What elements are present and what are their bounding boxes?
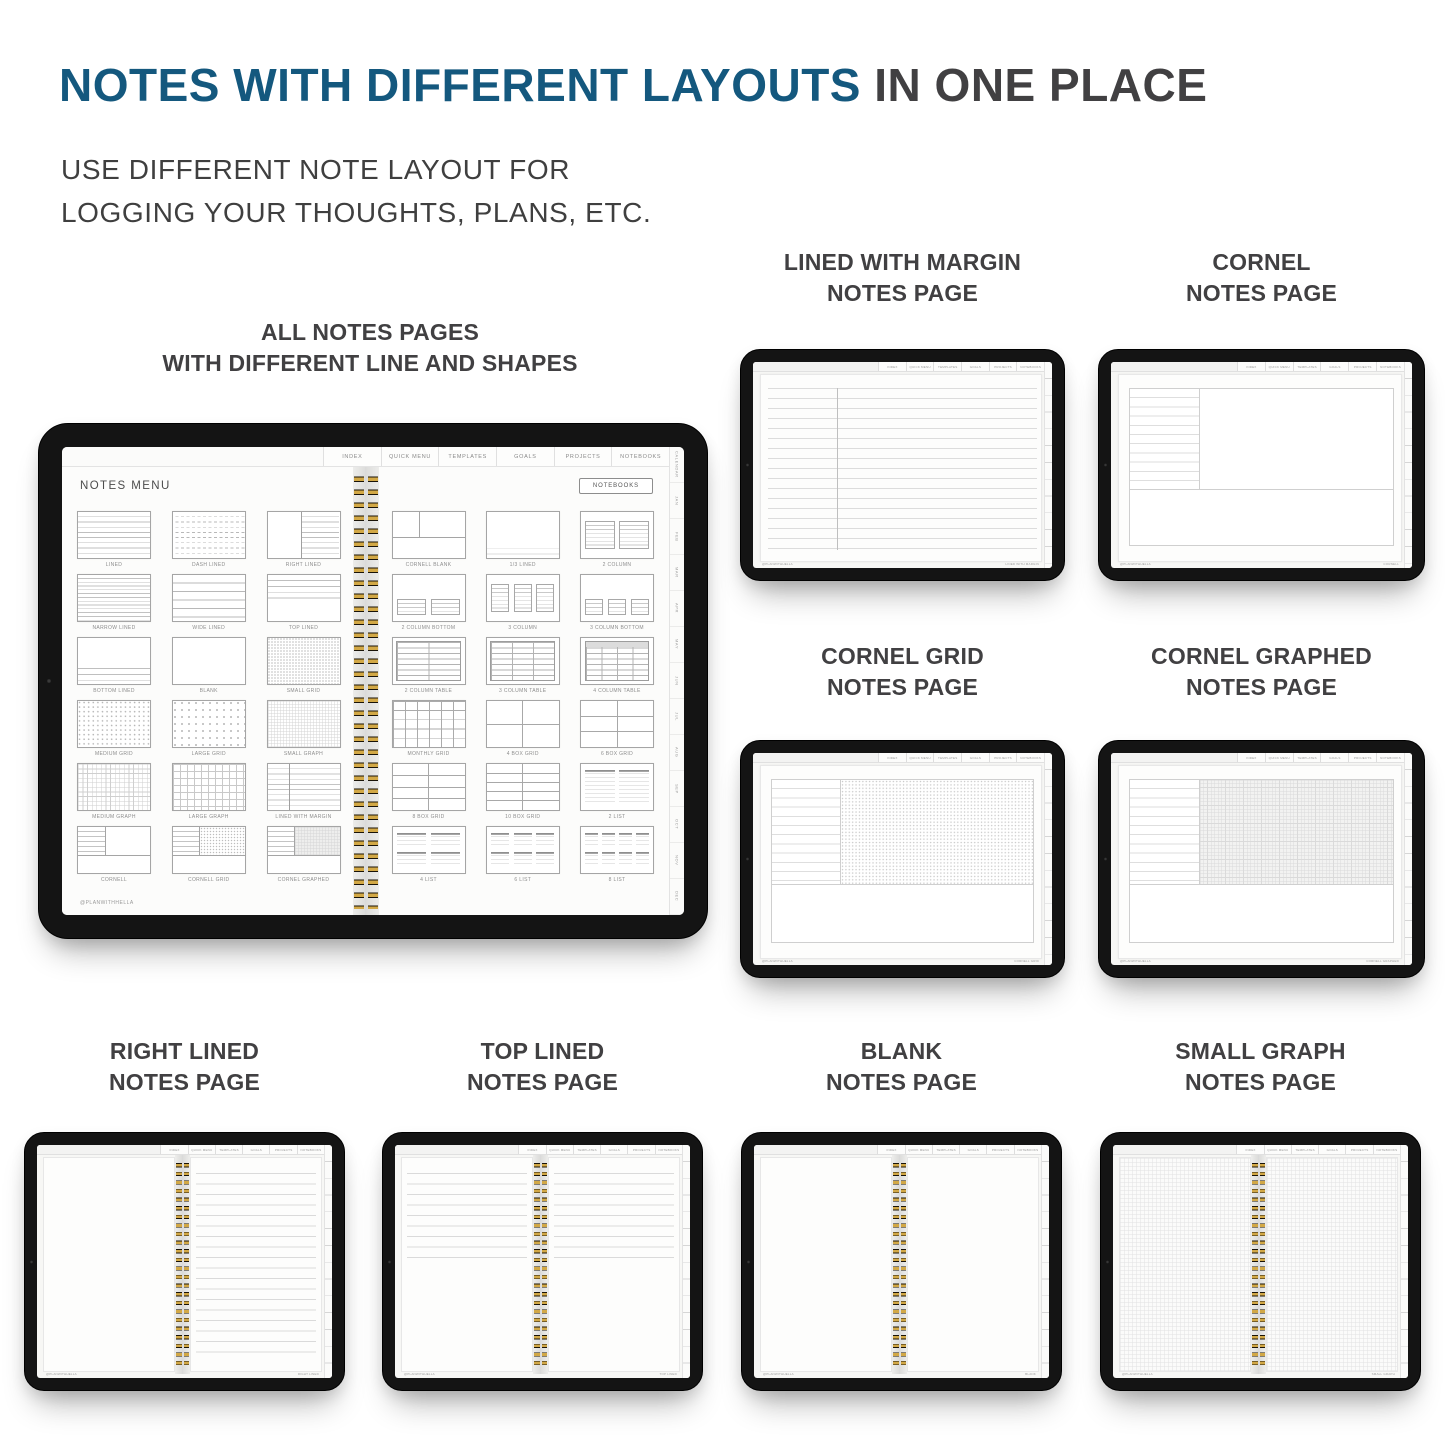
- tab-templates[interactable]: TEMPLATES: [933, 362, 961, 371]
- page-content: [43, 1155, 322, 1374]
- thumb-preview-10-box-grid: [486, 763, 560, 811]
- tab-goals[interactable]: GOALS: [959, 1145, 986, 1154]
- list-block: [491, 833, 509, 849]
- tab-index[interactable]: INDEX: [878, 753, 906, 762]
- month-tab-strip: [1044, 362, 1052, 568]
- month-tab-strip: [682, 1145, 690, 1378]
- card-title: CORNEL GRAPHEDNOTES PAGE: [1098, 641, 1425, 703]
- thumb-preview-right-lined: [267, 511, 341, 559]
- tab-projects[interactable]: PROJECTS: [554, 447, 612, 466]
- card-right-lined: RIGHT LINEDNOTES PAGE INDEXQUICK MENUTEM…: [24, 1036, 345, 1392]
- tab-projects[interactable]: PROJECTS: [1348, 753, 1376, 762]
- tab-projects[interactable]: PROJECTS: [1345, 1145, 1372, 1154]
- cue-column: [772, 780, 841, 883]
- thumb-label: CORNEL GRAPHED: [278, 877, 330, 883]
- tab-templates[interactable]: TEMPLATES: [438, 447, 496, 466]
- right-page: [1266, 1157, 1398, 1372]
- right-page: [548, 1157, 680, 1372]
- cornell-grid-page: [760, 765, 1042, 959]
- left-page: [760, 1157, 892, 1372]
- tab-projects[interactable]: PROJECTS: [269, 1145, 296, 1154]
- notes-menu-left-page: NOTES MENU LINEDDASH LINEDRIGHT LINEDNAR…: [62, 467, 353, 915]
- tablet-screen: INDEXQUICK MENUTEMPLATESGOALSPROJECTSNOT…: [1113, 1145, 1408, 1378]
- table-block: [396, 641, 461, 681]
- tab-projects[interactable]: PROJECTS: [989, 753, 1017, 762]
- side-tab-mar[interactable]: MAR: [670, 555, 684, 591]
- front-camera-dot: [746, 858, 749, 861]
- lined-block: [619, 521, 648, 550]
- thumb-label: SMALL GRID: [287, 688, 321, 694]
- thumb-label: BLANK: [200, 688, 218, 694]
- list-block: [602, 833, 615, 849]
- notes-menu-item-cornel-graphed[interactable]: CORNEL GRAPHED: [267, 826, 341, 889]
- tab-notebooks[interactable]: NOTEBOOKS: [655, 1145, 682, 1154]
- caption-line-1: ALL NOTES PAGES: [32, 317, 708, 348]
- card-cornel: CORNELNOTES PAGE INDEXQUICK MENUTEMPLATE…: [1098, 247, 1425, 581]
- lined-block: [585, 521, 614, 550]
- column-blocks: [487, 575, 559, 621]
- thumb-label: 4 BOX GRID: [507, 751, 539, 757]
- side-tab-apr[interactable]: APR: [670, 591, 684, 627]
- notes-menu-item-large-graph[interactable]: LARGE GRAPH: [172, 763, 246, 826]
- tab-templates[interactable]: TEMPLATES: [1293, 753, 1321, 762]
- tab-projects[interactable]: PROJECTS: [986, 1145, 1013, 1154]
- thumb-preview-small-grid: [267, 637, 341, 685]
- tab-list: INDEXQUICK MENUTEMPLATESGOALSPROJECTSNOT…: [1237, 362, 1404, 371]
- thumb-label: TOP LINED: [289, 625, 318, 631]
- lined-block: [536, 584, 554, 613]
- notes-menu-item-2-list[interactable]: 2 LIST: [580, 763, 654, 826]
- thumb-label: 2 LIST: [609, 814, 626, 820]
- list-block: [491, 852, 509, 868]
- footer-page-name: CORNELL GRAPHED: [1366, 959, 1399, 963]
- cornell-graphed-page: [1118, 765, 1402, 959]
- lined-block: [514, 584, 532, 613]
- thumb-preview-medium-graph: [77, 763, 151, 811]
- thumb-label: LINED: [106, 562, 122, 568]
- page-subtitle: USE DIFFERENT NOTE LAYOUT FOR LOGGING YO…: [61, 148, 651, 235]
- notes-menu-item-dash-lined[interactable]: DASH LINED: [172, 511, 246, 574]
- tab-goals[interactable]: GOALS: [242, 1145, 269, 1154]
- thumb-preview-monthly-grid: [392, 700, 466, 748]
- notes-menu-item-right-lined[interactable]: RIGHT LINED: [267, 511, 341, 574]
- tab-goals[interactable]: GOALS: [961, 753, 989, 762]
- spiral-binding: [892, 1155, 907, 1374]
- month-tab-strip: [324, 1145, 332, 1378]
- tab-notebooks[interactable]: NOTEBOOKS: [1376, 753, 1404, 762]
- notes-menu-item-8-box-grid[interactable]: 8 BOX GRID: [392, 763, 466, 826]
- front-camera-dot: [388, 1260, 391, 1263]
- notebook-tab-bar: INDEXQUICK MENUTEMPLATESGOALSPROJECTSNOT…: [1113, 1145, 1400, 1155]
- list-block: [514, 852, 532, 868]
- right-page: [907, 1157, 1039, 1372]
- thumb-preview-lined: [77, 511, 151, 559]
- notebook-tab-bar: INDEXQUICK MENUTEMPLATESGOALSPROJECTSNOT…: [1111, 753, 1404, 763]
- side-tab-calendar[interactable]: CALENDAR: [670, 447, 684, 483]
- tablet-screen: INDEXQUICK MENUTEMPLATESGOALSPROJECTSNOT…: [753, 362, 1052, 568]
- tab-goals[interactable]: GOALS: [600, 1145, 627, 1154]
- notes-menu-item-lined-with-margin[interactable]: LINED WITH MARGIN: [267, 763, 341, 826]
- notes-menu-item-10-box-grid[interactable]: 10 BOX GRID: [486, 763, 560, 826]
- notes-menu-item-3-column[interactable]: 3 COLUMN: [486, 574, 560, 637]
- page-content: [401, 1155, 680, 1374]
- month-tab-strip: [1404, 362, 1412, 568]
- front-camera-dot: [1104, 464, 1107, 467]
- page-content: [759, 763, 1042, 961]
- notes-menu-item-3-column-bottom[interactable]: 3 COLUMN BOTTOM: [580, 574, 654, 637]
- thumb-preview-6-list: [486, 826, 560, 874]
- notes-menu-item-cornell-blank[interactable]: CORNELL BLANK: [392, 511, 466, 574]
- list-block: [619, 852, 632, 868]
- cornell-layout: [1129, 388, 1394, 546]
- list-block: [636, 833, 649, 849]
- side-tab-feb[interactable]: FEB: [670, 519, 684, 555]
- notes-menu-item-1-3-lined[interactable]: 1/3 LINED: [486, 511, 560, 574]
- list-block: [619, 770, 648, 805]
- notes-menu-item-4-list[interactable]: 4 LIST: [392, 826, 466, 889]
- month-tab-strip: [1404, 753, 1412, 965]
- tab-list: INDEXQUICK MENUTEMPLATESGOALSPROJECTSNOT…: [160, 1145, 324, 1154]
- lined-block: [631, 599, 649, 615]
- notebook-spread: NOTES MENU LINEDDASH LINEDRIGHT LINEDNAR…: [62, 467, 669, 915]
- thumb-label: CORNELL BLANK: [406, 562, 452, 568]
- notes-menu-title: NOTES MENU: [80, 480, 171, 492]
- tab-goals[interactable]: GOALS: [1320, 362, 1348, 371]
- thumb-label: DASH LINED: [192, 562, 226, 568]
- footer-page-name: RIGHT LINED: [298, 1372, 319, 1376]
- spiral-binding: [175, 1155, 190, 1374]
- tab-quick-menu[interactable]: QUICK MENU: [1265, 362, 1293, 371]
- notebook-tab-bar: INDEXQUICK MENUTEMPLATESGOALSPROJECTSNOT…: [753, 362, 1044, 372]
- notes-menu-item-2-column-table[interactable]: 2 COLUMN TABLE: [392, 637, 466, 700]
- tab-goals[interactable]: GOALS: [496, 447, 554, 466]
- tab-goals[interactable]: GOALS: [1318, 1145, 1345, 1154]
- thumb-preview-medium-grid: [77, 700, 151, 748]
- card-title: TOP LINEDNOTES PAGE: [382, 1036, 703, 1098]
- tab-projects[interactable]: PROJECTS: [989, 362, 1017, 371]
- notes-area: [1200, 780, 1393, 883]
- thumb-preview-bottom-lined: [77, 637, 151, 685]
- notebook-spread: [43, 1155, 322, 1374]
- spiral-binding: [533, 1155, 548, 1374]
- side-tab-jan[interactable]: JAN: [670, 483, 684, 519]
- tab-index[interactable]: INDEX: [518, 1145, 545, 1154]
- thumb-preview-large-grid: [172, 700, 246, 748]
- thumb-label: NARROW LINED: [92, 625, 135, 631]
- card-title: LINED WITH MARGINNOTES PAGE: [740, 247, 1065, 309]
- notes-menu-item-large-grid[interactable]: LARGE GRID: [172, 700, 246, 763]
- tab-list: INDEXQUICK MENUTEMPLATESGOALSPROJECTSNOT…: [877, 1145, 1041, 1154]
- thumb-preview-dash-lined: [172, 511, 246, 559]
- notes-menu-item-blank[interactable]: BLANK: [172, 637, 246, 700]
- summary-divider: [772, 884, 1033, 885]
- card-title: RIGHT LINEDNOTES PAGE: [24, 1036, 345, 1098]
- footer-page-name: BLANK: [1025, 1372, 1036, 1376]
- notes-menu-item-6-list[interactable]: 6 LIST: [486, 826, 560, 889]
- tab-notebooks[interactable]: NOTEBOOKS: [297, 1145, 324, 1154]
- tab-notebooks[interactable]: NOTEBOOKS: [1014, 1145, 1041, 1154]
- list-block: [397, 852, 426, 868]
- side-tab-jun[interactable]: JUN: [670, 663, 684, 699]
- footer-handle: @PLANWITHHELLA: [46, 1372, 77, 1376]
- notes-menu-item-cornell[interactable]: CORNELL: [77, 826, 151, 889]
- caption-line-2: WITH DIFFERENT LINE AND SHAPES: [32, 348, 708, 379]
- notes-menu-item-8-list[interactable]: 8 LIST: [580, 826, 654, 889]
- right-page-grid: CORNELL BLANK1/3 LINED2 COLUMN2 COLUMN B…: [392, 511, 655, 893]
- thumb-preview-3-column-bottom: [580, 574, 654, 622]
- tab-quick-menu[interactable]: QUICK MENU: [905, 1145, 932, 1154]
- tab-templates[interactable]: TEMPLATES: [1293, 362, 1321, 371]
- thumb-preview-8-list: [580, 826, 654, 874]
- notes-menu-item-small-grid[interactable]: SMALL GRID: [267, 637, 341, 700]
- lined-margin-page: [760, 374, 1042, 562]
- list-block: [514, 833, 532, 849]
- thumb-label: MONTHLY GRID: [407, 751, 449, 757]
- thumb-preview-3-column: [486, 574, 560, 622]
- notes-menu-item-4-column-table[interactable]: 4 COLUMN TABLE: [580, 637, 654, 700]
- thumb-label: MEDIUM GRID: [95, 751, 133, 757]
- side-tab-sep[interactable]: SEP: [670, 771, 684, 807]
- tab-templates[interactable]: TEMPLATES: [933, 753, 961, 762]
- cue-column: [1130, 389, 1200, 489]
- thumb-label: MEDIUM GRAPH: [92, 814, 136, 820]
- tab-templates[interactable]: TEMPLATES: [1291, 1145, 1318, 1154]
- thumb-label: WIDE LINED: [192, 625, 225, 631]
- list-blocks: [581, 827, 653, 873]
- main-tablet-mockup: INDEXQUICK MENUTEMPLATESGOALSPROJECTSNOT…: [38, 423, 708, 939]
- spiral-binding: [353, 467, 379, 915]
- notes-menu-item-small-graph[interactable]: SMALL GRAPH: [267, 700, 341, 763]
- notebook-spread: [401, 1155, 680, 1374]
- tab-index[interactable]: INDEX: [323, 447, 381, 466]
- tab-goals[interactable]: GOALS: [961, 362, 989, 371]
- tab-index[interactable]: INDEX: [1237, 753, 1265, 762]
- thumb-label: CORNELL GRID: [188, 877, 230, 883]
- notes-menu-item-monthly-grid[interactable]: MONTHLY GRID: [392, 700, 466, 763]
- tab-projects[interactable]: PROJECTS: [1348, 362, 1376, 371]
- table-block: [490, 641, 555, 681]
- cornell-layout: [771, 779, 1034, 942]
- tab-notebooks[interactable]: NOTEBOOKS: [1376, 362, 1404, 371]
- page-content: [1119, 1155, 1398, 1374]
- footer-handle: @PLANWITHHELLA: [762, 959, 793, 963]
- list-block: [397, 833, 426, 849]
- tab-notebooks[interactable]: NOTEBOOKS: [1016, 753, 1044, 762]
- tablet-screen: INDEXQUICK MENUTEMPLATESGOALSPROJECTSNOT…: [1111, 362, 1412, 568]
- thumb-label: RIGHT LINED: [286, 562, 321, 568]
- front-camera-dot: [1106, 1260, 1109, 1263]
- tab-index[interactable]: INDEX: [877, 1145, 904, 1154]
- footer-handle: @PLANWITHHELLA: [80, 900, 134, 906]
- tab-notebooks[interactable]: NOTEBOOKS: [1373, 1145, 1400, 1154]
- list-block: [431, 852, 460, 868]
- card-small-graph: SMALL GRAPHNOTES PAGE INDEXQUICK MENUTEM…: [1100, 1036, 1421, 1392]
- column-blocks: [393, 575, 465, 621]
- thumb-label: LINED WITH MARGIN: [275, 814, 331, 820]
- notes-area: [841, 780, 1033, 883]
- notes-menu-item-top-lined[interactable]: TOP LINED: [267, 574, 341, 637]
- month-tab-strip: [1044, 753, 1052, 965]
- notes-menu-item-3-column-table[interactable]: 3 COLUMN TABLE: [486, 637, 560, 700]
- thumb-label: 4 LIST: [420, 877, 437, 883]
- thumb-label: 2 COLUMN BOTTOM: [402, 625, 456, 631]
- thumb-preview-cornell-blank: [392, 511, 466, 559]
- tab-list: INDEXQUICK MENUTEMPLATESGOALSPROJECTSNOT…: [1237, 753, 1404, 762]
- month-tab-strip: CALENDARJANFEBMARAPRMAYJUNJULAUGSEPOCTNO…: [669, 447, 684, 915]
- thumb-preview-2-column-table: [392, 637, 466, 685]
- footer-page-name: SMALL GRAPH: [1372, 1372, 1395, 1376]
- notes-menu-item-4-box-grid[interactable]: 4 BOX GRID: [486, 700, 560, 763]
- notes-menu-item-medium-grid[interactable]: MEDIUM GRID: [77, 700, 151, 763]
- notebooks-button[interactable]: NOTEBOOKS: [579, 478, 653, 494]
- card-title: SMALL GRAPHNOTES PAGE: [1100, 1036, 1421, 1098]
- thumb-preview-small-graph: [267, 700, 341, 748]
- side-tab-aug[interactable]: AUG: [670, 735, 684, 771]
- footer-page-name: CORNELL GRID: [1014, 959, 1039, 963]
- notes-menu-item-bottom-lined[interactable]: BOTTOM LINED: [77, 637, 151, 700]
- list-block: [602, 852, 615, 868]
- notes-menu-item-lined[interactable]: LINED: [77, 511, 151, 574]
- thumb-preview-4-column-table: [580, 637, 654, 685]
- right-page: [190, 1157, 322, 1372]
- footer-page-name: CORNELL: [1383, 562, 1399, 566]
- thumb-preview-1-3-lined: [486, 511, 560, 559]
- main-tablet-caption: ALL NOTES PAGES WITH DIFFERENT LINE AND …: [32, 317, 708, 379]
- list-blocks: [487, 827, 559, 873]
- tab-index[interactable]: INDEX: [1236, 1145, 1263, 1154]
- subtitle-line-1: USE DIFFERENT NOTE LAYOUT FOR: [61, 148, 651, 191]
- thumb-label: LARGE GRAPH: [189, 814, 229, 820]
- tab-quick-menu[interactable]: QUICK MENU: [906, 753, 934, 762]
- card-title: CORNEL GRIDNOTES PAGE: [740, 641, 1065, 703]
- tab-quick-menu[interactable]: QUICK MENU: [546, 1145, 573, 1154]
- side-tab-oct[interactable]: OCT: [670, 807, 684, 843]
- thumb-preview-cornel-graphed: [267, 826, 341, 874]
- tablet-screen: INDEXQUICK MENUTEMPLATESGOALSPROJECTSNOT…: [37, 1145, 332, 1378]
- card-blank: BLANKNOTES PAGE INDEXQUICK MENUTEMPLATES…: [741, 1036, 1062, 1392]
- tab-notebooks[interactable]: NOTEBOOKS: [1016, 362, 1044, 371]
- tab-index[interactable]: INDEX: [160, 1145, 187, 1154]
- lined-block: [397, 599, 426, 615]
- tab-list: INDEXQUICK MENUTEMPLATESGOALSPROJECTSNOT…: [518, 1145, 682, 1154]
- thumb-preview-8-box-grid: [392, 763, 466, 811]
- list-block: [431, 833, 460, 849]
- footer-handle: @PLANWITHHELLA: [1120, 562, 1151, 566]
- card-cornel-grid: CORNEL GRIDNOTES PAGE INDEXQUICK MENUTEM…: [740, 641, 1065, 978]
- cue-column: [1130, 780, 1200, 883]
- side-tab-nov[interactable]: NOV: [670, 843, 684, 879]
- footer-page-name: TOP LINED: [659, 1372, 677, 1376]
- footer-handle: @PLANWITHHELLA: [762, 562, 793, 566]
- tab-quick-menu[interactable]: QUICK MENU: [188, 1145, 215, 1154]
- tab-quick-menu[interactable]: QUICK MENU: [906, 362, 934, 371]
- thumb-label: 3 COLUMN TABLE: [499, 688, 547, 694]
- thumb-preview-blank: [172, 637, 246, 685]
- side-tab-jul[interactable]: JUL: [670, 699, 684, 735]
- lined-block: [608, 599, 626, 615]
- notes-area: [1200, 389, 1393, 489]
- tab-index[interactable]: INDEX: [878, 362, 906, 371]
- tablet-mockup: INDEXQUICK MENUTEMPLATESGOALSPROJECTSNOT…: [1098, 740, 1425, 978]
- thumb-preview-2-column: [580, 511, 654, 559]
- list-block: [636, 852, 649, 868]
- subtitle-line-2: LOGGING YOUR THOUGHTS, PLANS, ETC.: [61, 191, 651, 234]
- thumb-label: SMALL GRAPH: [284, 751, 323, 757]
- tablet-screen: INDEXQUICK MENUTEMPLATESGOALSPROJECTSNOT…: [395, 1145, 690, 1378]
- list-block: [536, 852, 554, 868]
- thumb-label: BOTTOM LINED: [93, 688, 135, 694]
- notebook-tab-bar: INDEXQUICK MENUTEMPLATESGOALSPROJECTSNOT…: [62, 447, 669, 467]
- footer-handle: @PLANWITHHELLA: [1122, 1372, 1153, 1376]
- footer-handle: @PLANWITHHELLA: [1120, 959, 1151, 963]
- tab-quick-menu[interactable]: QUICK MENU: [1265, 753, 1293, 762]
- cornell-page: [1118, 374, 1402, 562]
- page-content: [759, 372, 1042, 564]
- notes-menu-right-page: NOTEBOOKS CORNELL BLANK1/3 LINED2 COLUMN…: [379, 467, 670, 915]
- thumb-preview-top-lined: [267, 574, 341, 622]
- front-camera-dot: [746, 464, 749, 467]
- page-title: NOTES WITH DIFFERENT LAYOUTS IN ONE PLAC…: [59, 58, 1207, 112]
- card-title: CORNELNOTES PAGE: [1098, 247, 1425, 309]
- notes-menu-item-2-column[interactable]: 2 COLUMN: [580, 511, 654, 574]
- tab-templates[interactable]: TEMPLATES: [215, 1145, 242, 1154]
- tab-list: INDEXQUICK MENUTEMPLATESGOALSPROJECTSNOT…: [878, 362, 1044, 371]
- tab-notebooks[interactable]: NOTEBOOKS: [611, 447, 669, 466]
- summary-divider: [1130, 884, 1393, 885]
- notebook-spread: [1119, 1155, 1398, 1374]
- column-blocks: [581, 575, 653, 621]
- page-canvas: NOTES WITH DIFFERENT LAYOUTS IN ONE PLAC…: [0, 0, 1445, 1445]
- notes-menu-item-cornell-grid[interactable]: CORNELL GRID: [172, 826, 246, 889]
- tab-quick-menu[interactable]: QUICK MENU: [1264, 1145, 1291, 1154]
- page-title-highlight: NOTES WITH DIFFERENT LAYOUTS: [59, 59, 861, 111]
- side-tab-dec[interactable]: DEC: [670, 879, 684, 915]
- page-title-rest: IN ONE PLACE: [861, 59, 1207, 111]
- notes-menu-item-wide-lined[interactable]: WIDE LINED: [172, 574, 246, 637]
- list-blocks: [581, 764, 653, 810]
- footer-page-name: LINED WITH MARGIN: [1005, 562, 1039, 566]
- column-blocks: [581, 512, 653, 558]
- thumb-preview-lined-with-margin: [267, 763, 341, 811]
- tab-projects[interactable]: PROJECTS: [627, 1145, 654, 1154]
- tablet-screen: INDEXQUICK MENUTEMPLATESGOALSPROJECTSNOT…: [754, 1145, 1049, 1378]
- notes-menu-item-6-box-grid[interactable]: 6 BOX GRID: [580, 700, 654, 763]
- tab-index[interactable]: INDEX: [1237, 362, 1265, 371]
- tablet-mockup: INDEXQUICK MENUTEMPLATESGOALSPROJECTSNOT…: [24, 1132, 345, 1391]
- tablet-mockup: INDEXQUICK MENUTEMPLATESGOALSPROJECTSNOT…: [741, 1132, 1062, 1391]
- tab-goals[interactable]: GOALS: [1320, 753, 1348, 762]
- lined-block: [431, 599, 460, 615]
- notes-menu-item-2-column-bottom[interactable]: 2 COLUMN BOTTOM: [392, 574, 466, 637]
- spiral-binding: [1251, 1155, 1266, 1374]
- thumb-label: 3 COLUMN BOTTOM: [590, 625, 644, 631]
- tablet-mockup: INDEXQUICK MENUTEMPLATESGOALSPROJECTSNOT…: [382, 1132, 703, 1391]
- card-lined-with-margin: LINED WITH MARGINNOTES PAGE INDEXQUICK M…: [740, 247, 1065, 581]
- side-tab-may[interactable]: MAY: [670, 627, 684, 663]
- notes-menu-item-medium-graph[interactable]: MEDIUM GRAPH: [77, 763, 151, 826]
- tab-quick-menu[interactable]: QUICK MENU: [381, 447, 439, 466]
- tab-templates[interactable]: TEMPLATES: [573, 1145, 600, 1154]
- left-page: [43, 1157, 175, 1372]
- notes-menu-item-narrow-lined[interactable]: NARROW LINED: [77, 574, 151, 637]
- tablet-screen: INDEXQUICK MENUTEMPLATESGOALSPROJECTSNOT…: [1111, 753, 1412, 965]
- tab-templates[interactable]: TEMPLATES: [932, 1145, 959, 1154]
- card-top-lined: TOP LINEDNOTES PAGE INDEXQUICK MENUTEMPL…: [382, 1036, 703, 1392]
- tablet-screen: INDEXQUICK MENUTEMPLATESGOALSPROJECTSNOT…: [753, 753, 1052, 965]
- list-block: [585, 770, 614, 805]
- list-blocks: [393, 827, 465, 873]
- notebook-tab-bar: INDEXQUICK MENUTEMPLATESGOALSPROJECTSNOT…: [1111, 362, 1404, 372]
